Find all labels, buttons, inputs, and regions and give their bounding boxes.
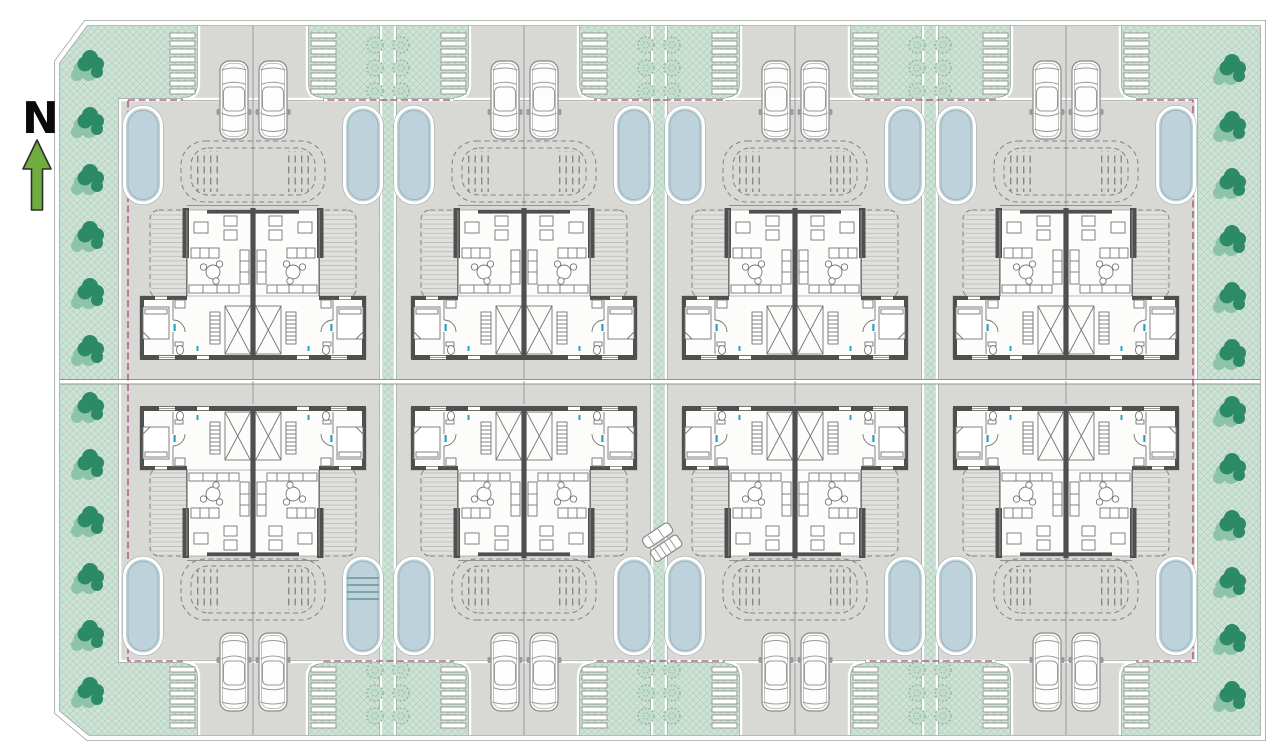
- north-indicator: N: [22, 93, 59, 210]
- duplex-r1c1: [140, 206, 366, 361]
- duplex-r2c2: [411, 406, 637, 561]
- duplex-r1c4: [953, 206, 1179, 361]
- north-arrow-icon: [23, 140, 51, 210]
- duplex-r2c4: [953, 406, 1179, 561]
- duplex-r1c2: [411, 206, 637, 361]
- site: [57, 23, 1263, 738]
- site-plan-drawing: N: [0, 0, 1287, 756]
- duplex-r1c3: [682, 206, 908, 361]
- duplex-r2c1: [140, 406, 366, 561]
- duplex-r2c3: [682, 406, 908, 561]
- central-divider: [57, 380, 1263, 385]
- north-label: N: [22, 93, 59, 144]
